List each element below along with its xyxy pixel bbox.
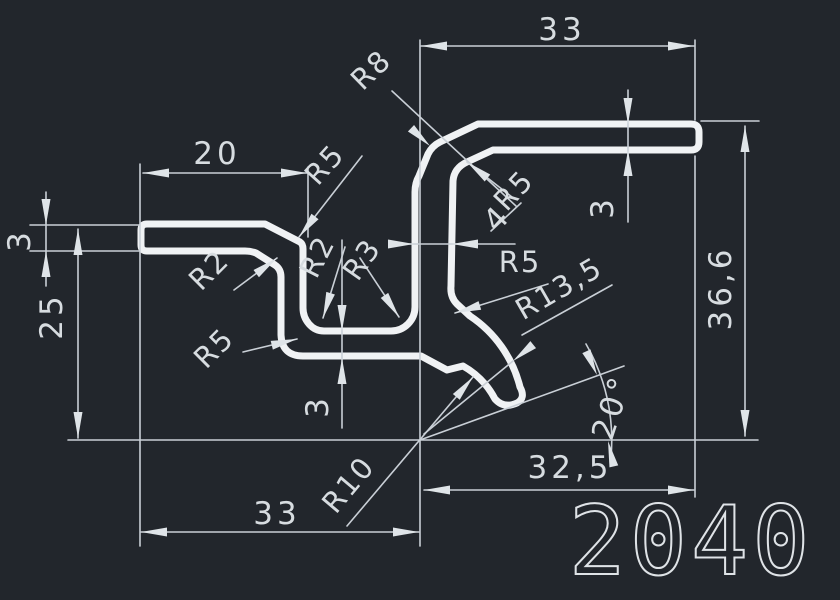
leader-r10 [347, 377, 473, 526]
arrow-left-thickness-top [42, 199, 51, 225]
dim-left-thickness: 3 [2, 228, 38, 252]
arrow-top-width-right [668, 42, 694, 51]
dim-left-height: 25 [34, 292, 70, 339]
arrow-web-thickness-bottom [338, 358, 347, 384]
label-r5-stem-bottom: R5 [499, 245, 542, 279]
dim-bottom-right-width: 32,5 [527, 450, 612, 486]
dim-bottom-width: 33 [253, 496, 300, 532]
dim-web-thickness: 3 [300, 394, 336, 418]
arrow-web-thickness-top [338, 305, 347, 331]
dim-leg-angle: 20° [585, 370, 640, 445]
dim-overall-height: 36,6 [703, 245, 739, 330]
arrow-bottom-width-right [393, 528, 419, 537]
label-r3-pocket: R3 [336, 232, 388, 286]
arrow-bottom-width-left [141, 528, 167, 537]
arrow-r3-pocket [381, 293, 403, 320]
arrow-left-thickness-bottom [42, 251, 51, 277]
cad-drawing-canvas: 33 20 3 25 33 32,5 36,6 3 3 4 20° R8 R5 … [0, 0, 840, 600]
arrow-overall-height-bottom [741, 410, 750, 436]
label-r8: R8 [344, 43, 398, 97]
label-r5-outer: R5 [187, 321, 241, 375]
arrow-r2-pocket [319, 292, 335, 319]
arrow-stem-width-left [388, 240, 414, 249]
label-r10: R10 [315, 449, 382, 519]
arrow-overall-height-top [741, 126, 750, 152]
arrow-stem-width-right [452, 240, 478, 249]
arrow-top-thickness-bottom [624, 150, 633, 176]
arrow-left-height-top [74, 229, 83, 255]
label-r5-top-left: R5 [298, 137, 352, 191]
part-number: 2040 [569, 487, 814, 597]
dim-top-width: 33 [538, 12, 585, 48]
arrow-top-width-left [421, 42, 447, 51]
dim-top-thickness: 3 [585, 195, 621, 219]
arrow-flange-width-left [143, 169, 169, 178]
arrow-bottom-right-width-left [424, 486, 450, 495]
technical-drawing: 33 20 3 25 33 32,5 36,6 3 3 4 20° R8 R5 … [0, 0, 840, 600]
arrow-top-thickness-top [624, 98, 633, 124]
arrow-left-height-bottom [74, 412, 83, 438]
dim-flange-width: 20 [193, 136, 240, 172]
